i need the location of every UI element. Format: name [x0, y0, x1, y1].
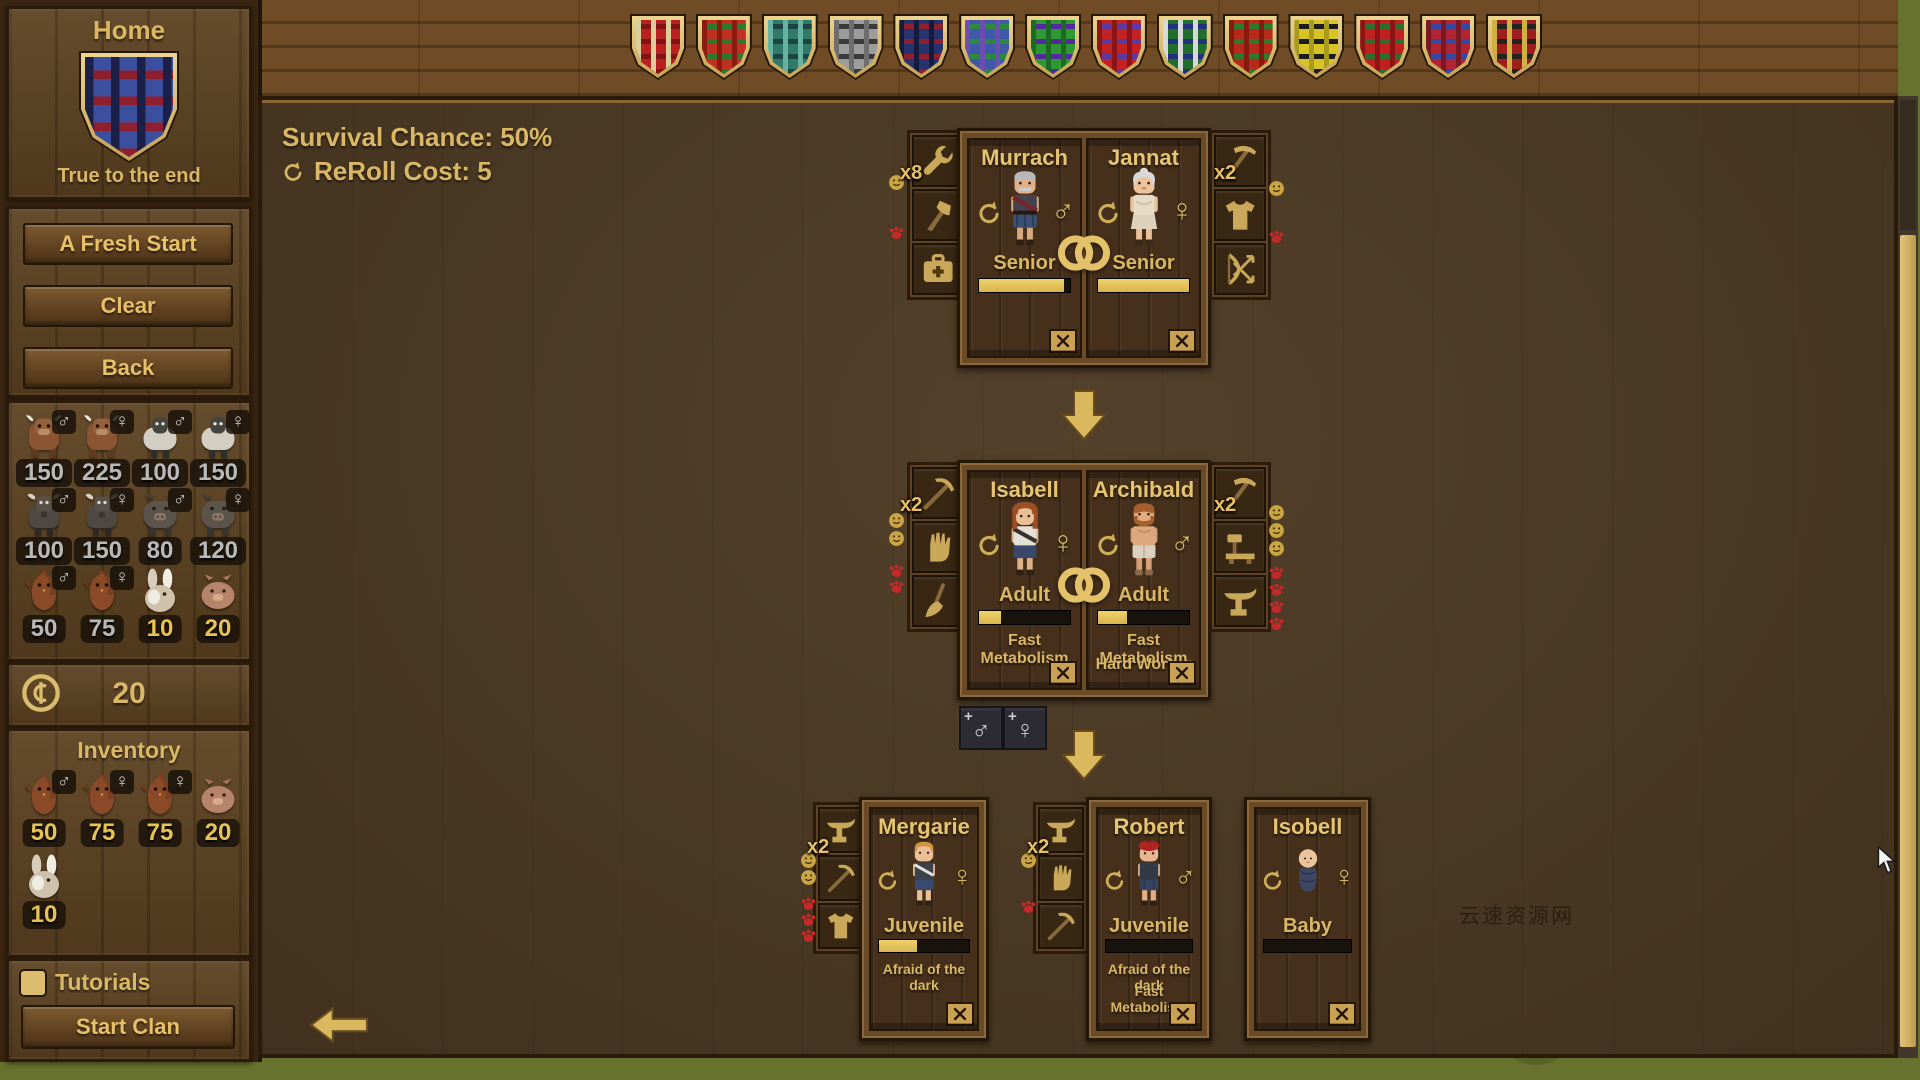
age-stage-label: Juvenile [1098, 915, 1200, 938]
tartan-shield-option-5[interactable] [893, 14, 949, 80]
medkit-icon [919, 250, 957, 288]
market-animal-pig-male[interactable]: ♂80 [131, 489, 189, 569]
fresh-start-button[interactable]: A Fresh Start [23, 223, 233, 265]
tartan-shield-option-8[interactable] [1091, 14, 1147, 80]
axe-icon [919, 196, 957, 234]
child-card-robert: Robert ♂ Juvenile Afraid of the dark Fas… [1086, 797, 1212, 1041]
reroll-character-button[interactable] [874, 867, 901, 897]
age-progress-bar [878, 939, 970, 953]
happy-mood-icon [1268, 540, 1285, 557]
animal-price: 120 [190, 537, 246, 565]
character-sprite-jannat [1117, 166, 1170, 250]
item-count: 20 [197, 819, 240, 847]
tartan-shield-option-12[interactable] [1354, 14, 1410, 80]
animal-dislike-icon [800, 911, 817, 928]
tool-multiplier: x2 [1027, 836, 1049, 859]
generation-flow-arrow [1062, 390, 1106, 440]
rabbit-icon [136, 567, 184, 615]
close-icon [953, 1007, 967, 1021]
character-name: Isobell [1256, 814, 1359, 840]
market-animal-goat-male[interactable]: ♂100 [15, 489, 73, 569]
remove-character-button[interactable] [1049, 329, 1077, 353]
marriage-rings-icon [1053, 233, 1115, 273]
tartan-shield-option-13[interactable] [1420, 14, 1476, 80]
item-count: 50 [23, 819, 66, 847]
remove-character-button[interactable] [1168, 329, 1196, 353]
character-sprite-archibald [1118, 498, 1169, 580]
tool-multiplier: x2 [807, 836, 829, 859]
female-symbol-icon: ♀ [226, 410, 250, 434]
tartan-shield-option-9[interactable] [1157, 14, 1213, 80]
animal-dislike-icon [1268, 564, 1285, 581]
market-animal-rabbit[interactable]: 10 [131, 567, 189, 647]
tool-slot-workbench[interactable] [1214, 521, 1266, 573]
reroll-character-button[interactable] [974, 198, 1004, 231]
back-arrow-button[interactable] [310, 1006, 368, 1044]
tool-slot-anvil[interactable] [1214, 575, 1266, 627]
mouse-cursor [1876, 846, 1898, 876]
family-setup-panel: Survival Chance: 50% ReRoll Cost: 5 x8 M… [258, 96, 1898, 1058]
clan-motto: True to the end [9, 165, 249, 188]
wrench-icon [919, 142, 957, 180]
animal-price: 10 [139, 615, 182, 643]
inventory-title: Inventory [9, 737, 249, 764]
reroll-character-button[interactable] [1093, 198, 1123, 231]
tartan-shield-option-2[interactable] [696, 14, 752, 80]
tartan-shield-option-7[interactable] [1025, 14, 1081, 80]
reroll-cost-label: ReRoll Cost: 5 [314, 156, 492, 187]
close-icon [1175, 334, 1189, 348]
market-animal-piglet[interactable]: 20 [189, 567, 247, 647]
back-button[interactable]: Back [23, 347, 233, 389]
bow-icon [1221, 250, 1259, 288]
marriage-rings-icon [1053, 565, 1115, 605]
age-progress-bar [1097, 610, 1190, 625]
trait-label: Afraid of the dark [871, 961, 977, 993]
remove-character-button[interactable] [1168, 661, 1196, 685]
inventory-chicken-female-2[interactable]: ♀75 [131, 771, 189, 851]
character-sprite-robert [1126, 837, 1172, 911]
tartan-shield-option-3[interactable] [762, 14, 818, 80]
pickaxe-icon [919, 474, 957, 512]
age-stage-label: Baby [1256, 915, 1359, 938]
age-progress-bar [978, 610, 1071, 625]
workbench-icon [1221, 528, 1259, 566]
character-card-isobell: Isobell ♀ Baby [1254, 807, 1361, 1031]
item-count: 75 [139, 819, 182, 847]
reroll-cost-row: ReRoll Cost: 5 [280, 156, 492, 187]
character-card-mergarie: Mergarie ♀ Juvenile Afraid of the dark [869, 807, 979, 1031]
survival-chance-label: Survival Chance: 50% [282, 122, 552, 153]
glove-icon [1044, 861, 1078, 895]
tartan-shield-option-1[interactable] [630, 14, 686, 80]
shirt-icon [824, 909, 858, 943]
close-icon [1175, 666, 1189, 680]
pickaxe-icon [1044, 909, 1078, 943]
scrollbar-upper-track [1900, 100, 1916, 230]
gen1-couple-card: Murrach ♂ Senior [957, 128, 1211, 368]
home-title: Home [9, 15, 249, 46]
clan-crest-panel: Home True to the end [6, 6, 252, 200]
tutorials-panel: Tutorials Start Clan [6, 958, 252, 1062]
reroll-character-button[interactable] [1101, 867, 1128, 897]
female-symbol: ♀ [1170, 192, 1194, 229]
inventory-chicken-male[interactable]: ♂50 [15, 771, 73, 851]
pickaxe-icon [824, 861, 858, 895]
male-symbol: ♂ [1174, 861, 1196, 894]
tartan-shield-option-10[interactable] [1223, 14, 1279, 80]
animal-dislike-icon [1268, 228, 1285, 245]
piglet-icon [194, 567, 242, 615]
tutorials-label: Tutorials [55, 969, 150, 996]
child-card-mergarie: Mergarie ♀ Juvenile Afraid of the dark [859, 797, 989, 1041]
happy-mood-icon [1268, 180, 1285, 197]
market-animal-chicken-female[interactable]: ♀75 [73, 567, 131, 647]
animal-price: 100 [16, 537, 72, 565]
animal-dislike-icon [1268, 581, 1285, 598]
age-progress-bar [1263, 939, 1352, 953]
female-symbol: ♀ [1333, 861, 1355, 894]
animal-price: 150 [16, 459, 72, 487]
age-progress-bar [1105, 939, 1193, 953]
animal-price: 75 [81, 615, 124, 643]
female-symbol: ♀ [1051, 524, 1075, 561]
age-stage-label: Juvenile [871, 915, 977, 938]
tartan-shield-option-6[interactable] [959, 14, 1015, 80]
clan-shield [79, 51, 179, 163]
age-progress-bar [978, 278, 1071, 293]
remove-character-button[interactable] [1328, 1002, 1356, 1026]
remove-character-button[interactable] [946, 1002, 974, 1026]
character-sprite-murrach [998, 166, 1051, 250]
clear-button[interactable]: Clear [23, 285, 233, 327]
watermark-text: 云速资源网 [1459, 900, 1574, 930]
market-animal-cattle-female[interactable]: ♀225 [73, 411, 131, 491]
close-icon [1176, 1007, 1190, 1021]
close-icon [1335, 1007, 1349, 1021]
inventory-piglet[interactable]: 20 [189, 771, 247, 851]
animal-dislike-icon [1268, 598, 1285, 615]
happy-mood-icon [888, 530, 905, 547]
reroll-character-button[interactable] [974, 530, 1004, 563]
tartan-shield-option-11[interactable] [1288, 14, 1344, 80]
tartan-selection-bar [258, 0, 1898, 100]
happy-mood-icon [1268, 522, 1285, 539]
animal-price: 150 [190, 459, 246, 487]
child-card-isobell: Isobell ♀ Baby [1244, 797, 1371, 1041]
remove-character-button[interactable] [1049, 661, 1077, 685]
female-symbol-icon: ♀ [226, 488, 250, 512]
animal-price: 20 [197, 615, 240, 643]
tool-slot-tunic[interactable] [1214, 189, 1266, 241]
female-symbol: ♀ [951, 861, 973, 894]
character-sprite-isobell [1288, 843, 1327, 905]
animal-market-panel: ♂150 ♀225 ♂100 ♀150 ♂100 ♀150 ♂80 ♀120 ♂… [6, 400, 252, 662]
tool-slot-hand[interactable] [1038, 855, 1084, 901]
animal-price: 225 [74, 459, 130, 487]
piglet-icon [194, 771, 242, 819]
coins-panel: 20 [6, 662, 252, 728]
animal-dislike-icon [888, 562, 905, 579]
animal-dislike-icon [800, 927, 817, 944]
anvil-icon [1221, 582, 1259, 620]
reroll-character-button[interactable] [1093, 530, 1123, 563]
tool-multiplier: x8 [900, 162, 922, 185]
character-card-robert: Robert ♂ Juvenile Afraid of the dark Fas… [1096, 807, 1202, 1031]
close-icon [1056, 666, 1070, 680]
tool-slot-shirt[interactable] [818, 903, 864, 949]
character-sprite-isabell [999, 498, 1050, 580]
animal-price: 50 [23, 615, 66, 643]
tunic-icon [1221, 196, 1259, 234]
male-symbol: ♂ [1051, 192, 1075, 229]
animal-dislike-icon [888, 224, 905, 241]
market-animal-sheep-female[interactable]: ♀150 [189, 411, 247, 491]
generation-flow-arrow [1062, 730, 1106, 780]
happy-mood-icon [800, 869, 817, 886]
reroll-icon [280, 159, 306, 185]
start-clan-button[interactable]: Start Clan [21, 1005, 235, 1049]
gen2-couple-card: Isabell ♀ Adult Fast Metabolism [957, 460, 1211, 700]
animal-price: 100 [132, 459, 188, 487]
tartan-shield-option-14[interactable] [1486, 14, 1542, 80]
market-animal-chicken-male[interactable]: ♂50 [15, 567, 73, 647]
age-progress-bar [1097, 278, 1190, 293]
character-sprite-mergarie [901, 837, 947, 911]
reroll-character-button[interactable] [1259, 867, 1286, 897]
add-female-child-button[interactable]: + ♀ [1003, 706, 1047, 750]
inventory-chicken-female[interactable]: ♀75 [73, 771, 131, 851]
remove-character-button[interactable] [1169, 1002, 1197, 1026]
animal-dislike-icon [800, 895, 817, 912]
animal-price: 80 [139, 537, 182, 565]
animal-dislike-icon [1020, 898, 1037, 915]
happy-mood-icon [1268, 504, 1285, 521]
broom-icon [919, 582, 957, 620]
gen2-right-tool-column [1209, 462, 1271, 632]
sidebar: Home True to the end A Fresh Start Clear… [0, 0, 262, 1062]
menu-buttons-panel: A Fresh Start Clear Back [6, 206, 252, 398]
close-icon [1056, 334, 1070, 348]
add-male-child-button[interactable]: + ♂ [959, 706, 1003, 750]
tool-multiplier: x2 [1214, 494, 1236, 517]
tutorials-checkbox[interactable] [19, 969, 47, 997]
tool-slot-bow[interactable] [1214, 243, 1266, 295]
market-animal-sheep-male[interactable]: ♂100 [131, 411, 189, 491]
item-count: 75 [81, 819, 124, 847]
animal-price: 150 [74, 537, 130, 565]
inventory-panel: Inventory ♂50 ♀75 ♀75 20 10 [6, 728, 252, 958]
male-symbol: ♂ [1170, 524, 1194, 561]
market-animal-pig-female[interactable]: ♀120 [189, 489, 247, 569]
robert-tool-column [1033, 802, 1089, 954]
male-symbol: ♂ [971, 714, 991, 745]
market-animal-goat-female[interactable]: ♀150 [73, 489, 131, 569]
gen1-right-tool-column [1209, 130, 1271, 300]
scrollbar-thumb[interactable] [1900, 235, 1916, 1047]
tool-multiplier: x2 [1214, 162, 1236, 185]
inventory-rabbit[interactable]: 10 [15, 853, 73, 933]
market-animal-cattle-male[interactable]: ♂150 [15, 411, 73, 491]
tartan-shield-option-4[interactable] [828, 14, 884, 80]
clan-creation-screen: Home True to the end A Fresh Start Clear… [0, 0, 1920, 1080]
coin-count: 20 [9, 677, 249, 711]
animal-dislike-icon [1268, 615, 1285, 632]
animal-dislike-icon [888, 578, 905, 595]
tool-slot-pickaxe[interactable] [818, 855, 864, 901]
tool-multiplier: x2 [900, 494, 922, 517]
rabbit-icon [20, 853, 68, 901]
glove-icon [919, 528, 957, 566]
female-symbol: ♀ [1015, 714, 1035, 745]
item-count: 10 [23, 901, 66, 929]
tool-slot-pickaxe[interactable] [1038, 903, 1084, 949]
